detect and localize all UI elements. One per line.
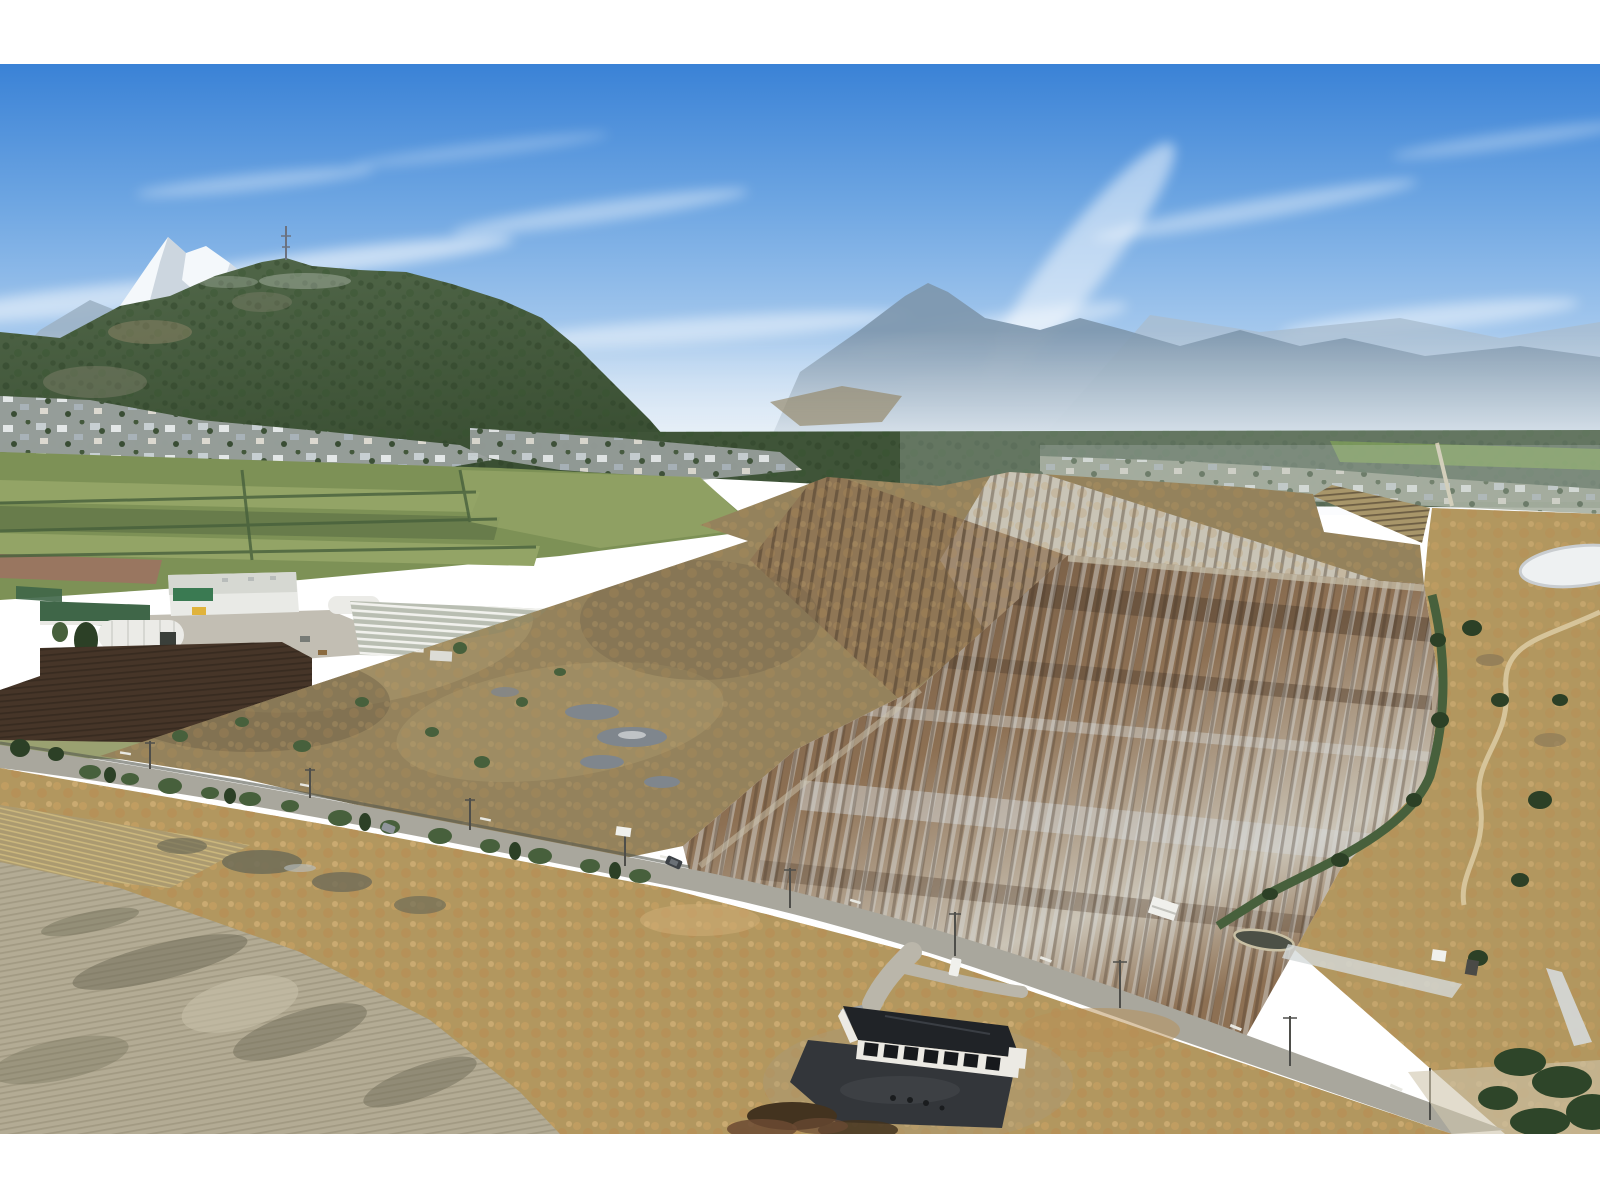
dark-shed (1465, 959, 1479, 976)
photo-margin-top (0, 0, 1600, 64)
photo-margin-bottom (0, 1134, 1600, 1200)
aerial-photo (0, 0, 1600, 1200)
photo-canvas (0, 0, 1600, 1200)
page (0, 0, 1600, 1200)
white-trailer-right (1431, 949, 1446, 962)
